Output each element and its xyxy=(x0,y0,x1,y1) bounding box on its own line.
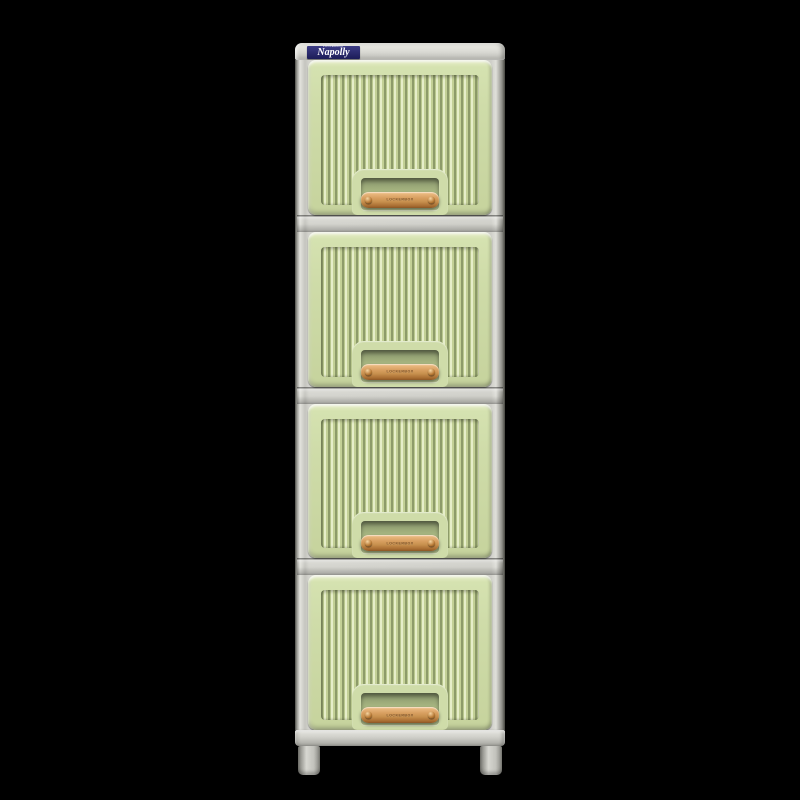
handle-recess: LOCKERBOX xyxy=(352,169,448,215)
drawer-handle: LOCKERBOX xyxy=(361,707,439,723)
handle-recess: LOCKERBOX xyxy=(352,341,448,387)
cabinet-leg-left xyxy=(298,746,320,775)
drawer-front-panel: LOCKERBOX xyxy=(308,404,492,559)
handle-recess: LOCKERBOX xyxy=(352,684,448,730)
handle-rivet-right-icon xyxy=(428,712,435,719)
drawer-1: LOCKERBOX xyxy=(295,60,505,215)
handle-rivet-right-icon xyxy=(428,196,435,203)
handle-recess: LOCKERBOX xyxy=(352,512,448,558)
drawer-front-panel: LOCKERBOX xyxy=(308,232,492,387)
drawer-handle: LOCKERBOX xyxy=(361,364,439,380)
handle-engraving: LOCKERBOX xyxy=(386,198,413,202)
brand-name-text: Napolly xyxy=(307,48,360,58)
storage-cabinet: LOCKERBOX Napolly LOCKERBOX xyxy=(295,43,505,775)
drawer-stack: LOCKERBOX LOCKERBOX xyxy=(295,60,505,730)
handle-engraving: LOCKERBOX xyxy=(386,369,413,373)
drawer-front-panel: LOCKERBOX xyxy=(308,575,492,730)
drawer-handle: LOCKERBOX xyxy=(361,192,439,208)
handle-rivet-left-icon xyxy=(365,540,372,547)
drawer-4: LOCKERBOX xyxy=(295,575,505,730)
handle-engraving: LOCKERBOX xyxy=(386,541,413,545)
drawer-2: LOCKERBOX xyxy=(295,232,505,387)
cabinet-leg-right xyxy=(480,746,502,775)
handle-rivet-left-icon xyxy=(365,196,372,203)
cabinet-base xyxy=(295,730,505,746)
photo-background: LOCKERBOX Napolly LOCKERBOX xyxy=(0,0,800,800)
handle-rivet-right-icon xyxy=(428,540,435,547)
handle-rivet-left-icon xyxy=(365,368,372,375)
brand-label: LOCKERBOX Napolly xyxy=(307,46,360,59)
drawer-handle: LOCKERBOX xyxy=(361,535,439,551)
handle-rivet-right-icon xyxy=(428,368,435,375)
handle-engraving: LOCKERBOX xyxy=(386,713,413,717)
drawer-3: LOCKERBOX xyxy=(295,404,505,559)
cabinet-top-lid: LOCKERBOX Napolly xyxy=(295,43,505,60)
handle-rivet-left-icon xyxy=(365,712,372,719)
drawer-front-panel: LOCKERBOX xyxy=(308,60,492,215)
